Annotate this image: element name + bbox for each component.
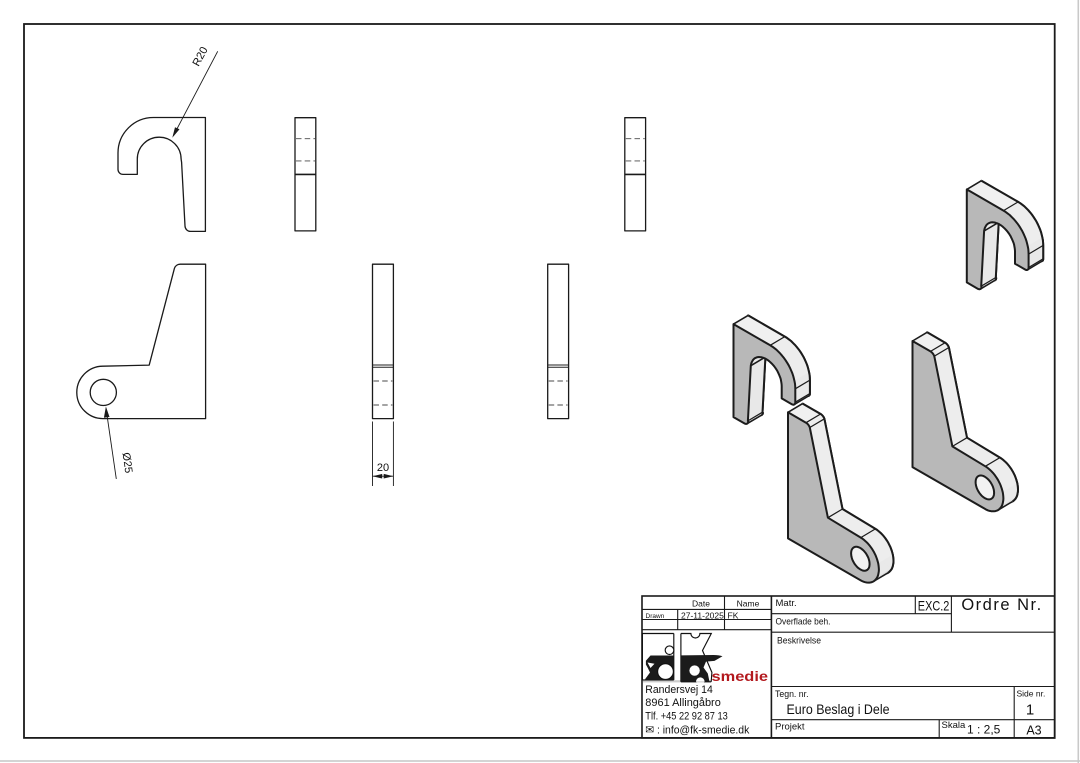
- svg-text:Overflade beh.: Overflade beh.: [776, 617, 831, 628]
- svg-text:✉ : info@fk-smedie.dk: ✉ : info@fk-smedie.dk: [645, 725, 749, 737]
- svg-text:Tegn. nr.: Tegn. nr.: [775, 689, 809, 699]
- svg-text:1 : 2,5: 1 : 2,5: [967, 723, 1001, 737]
- svg-text:Matr.: Matr.: [776, 598, 797, 609]
- svg-text:Euro Beslag i Dele: Euro Beslag i Dele: [787, 701, 890, 717]
- svg-text:1: 1: [1026, 702, 1034, 719]
- svg-text:Randersvej 14: Randersvej 14: [645, 684, 713, 696]
- svg-text:27-11-2025: 27-11-2025: [681, 610, 724, 620]
- svg-text:Skala: Skala: [942, 720, 966, 731]
- svg-text:Projekt: Projekt: [775, 721, 805, 732]
- svg-text:Ordre Nr.: Ordre Nr.: [961, 596, 1042, 614]
- svg-text:Beskrivelse: Beskrivelse: [777, 636, 821, 647]
- svg-text:Name: Name: [737, 599, 760, 609]
- svg-text:Tlf. +45 22 92 87 13: Tlf. +45 22 92 87 13: [645, 711, 728, 723]
- svg-text:Side nr.: Side nr.: [1017, 689, 1046, 699]
- svg-text:FK: FK: [728, 610, 739, 620]
- svg-text:20: 20: [377, 462, 389, 474]
- svg-text:EXC.2: EXC.2: [918, 597, 950, 613]
- svg-text:8961 Allingåbro: 8961 Allingåbro: [645, 697, 721, 709]
- svg-text:smedie: smedie: [712, 669, 769, 684]
- svg-text:Date: Date: [692, 599, 710, 609]
- svg-text:A3: A3: [1026, 723, 1041, 737]
- svg-text:Drawn: Drawn: [646, 613, 665, 620]
